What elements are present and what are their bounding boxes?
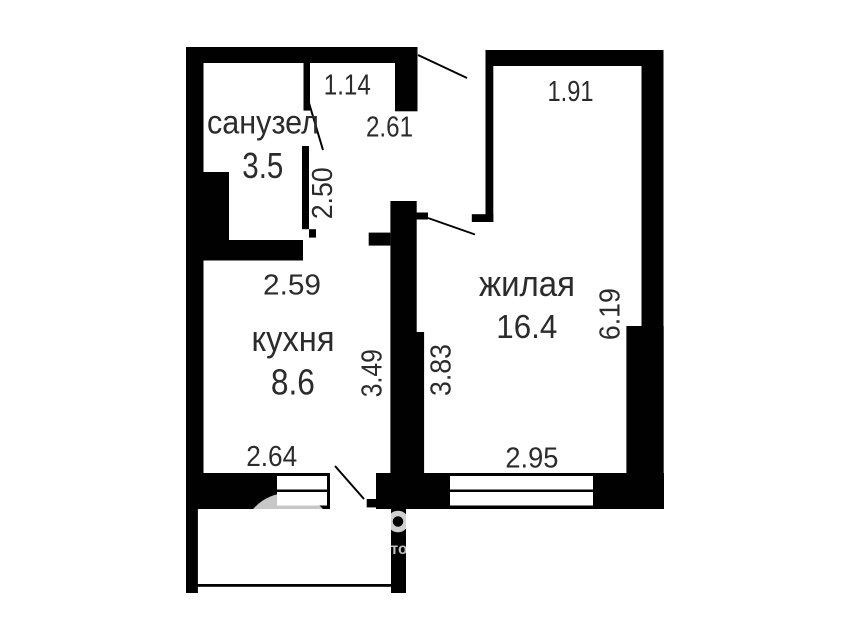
- svg-text:санузел: санузел: [207, 104, 319, 141]
- svg-text:3.49: 3.49: [357, 349, 389, 397]
- svg-text:2.50: 2.50: [307, 167, 339, 219]
- svg-text:16.4: 16.4: [496, 308, 557, 345]
- svg-text:3.5: 3.5: [242, 145, 283, 186]
- svg-text:жилая: жилая: [479, 263, 575, 304]
- svg-text:2.95: 2.95: [505, 442, 558, 474]
- svg-text:2.61: 2.61: [366, 112, 413, 144]
- svg-text:1.91: 1.91: [548, 76, 594, 108]
- svg-text:2.59: 2.59: [263, 270, 321, 302]
- svg-text:3.83: 3.83: [425, 344, 457, 396]
- svg-text:1.14: 1.14: [324, 69, 371, 101]
- svg-text:2.64: 2.64: [246, 441, 297, 473]
- svg-text:8.6: 8.6: [271, 362, 315, 403]
- svg-text:то: то: [391, 541, 408, 558]
- svg-text:кухня: кухня: [252, 318, 335, 359]
- svg-text:6.19: 6.19: [594, 288, 626, 340]
